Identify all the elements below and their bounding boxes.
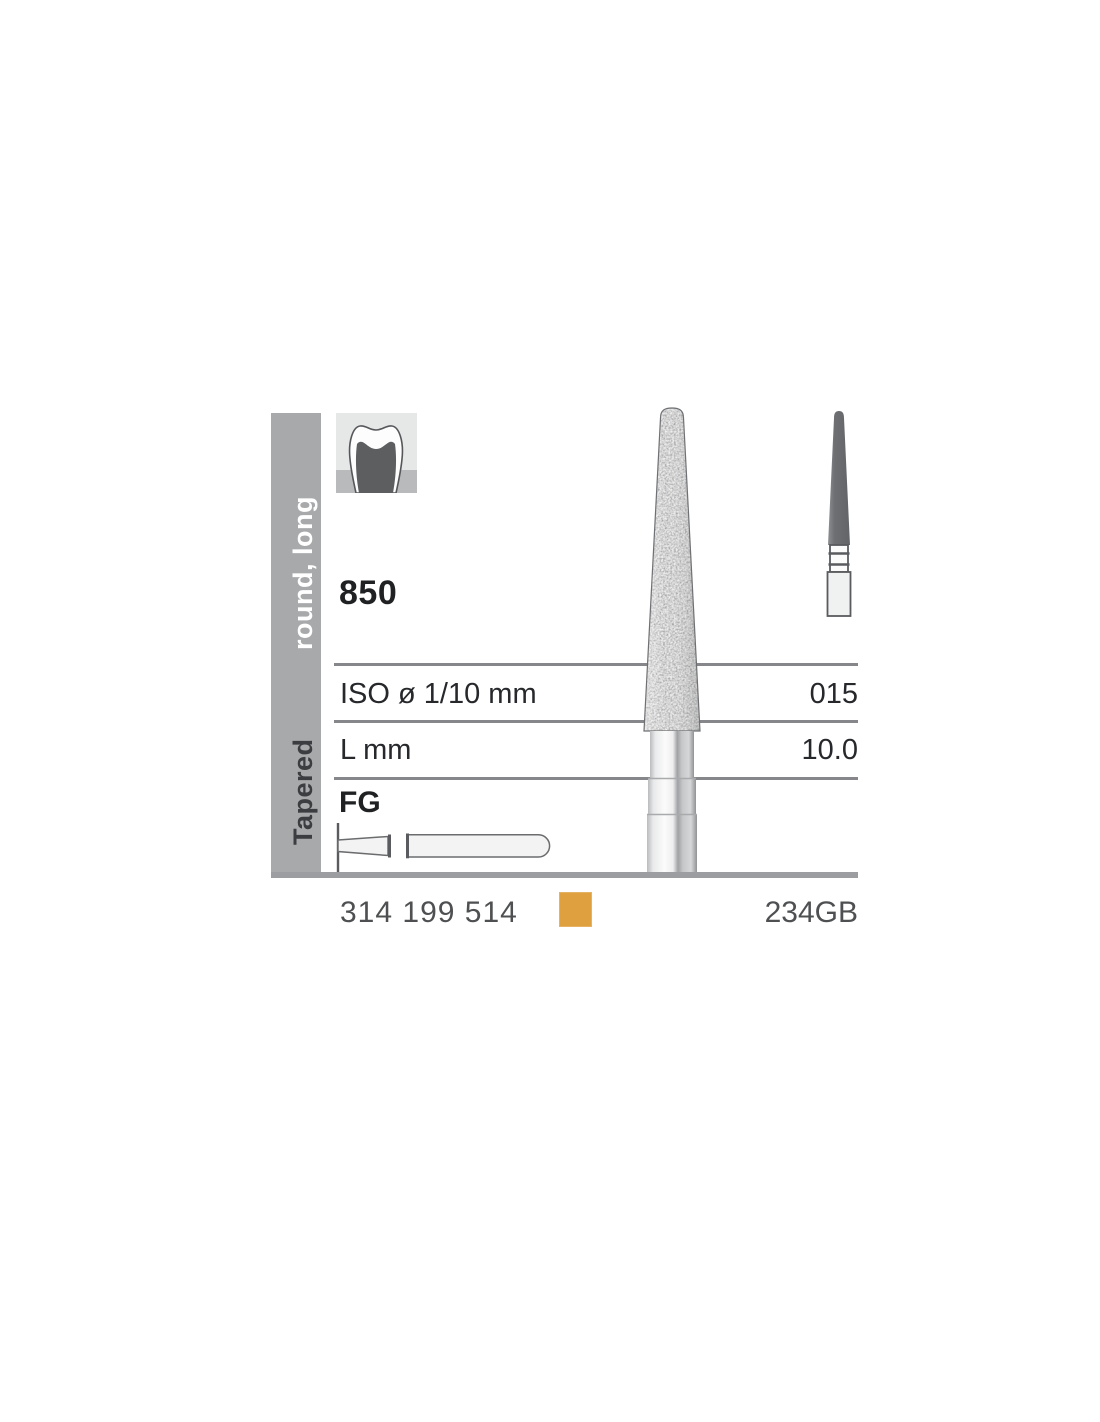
silhouette-working-part <box>828 411 850 545</box>
group-label-vertical: Tapered <box>287 738 319 845</box>
product-code: 234GB <box>700 896 858 930</box>
silhouette-shank <box>828 572 851 616</box>
figure-number: 850 <box>339 574 397 613</box>
silhouette-neck <box>830 545 848 572</box>
order-number: 314 199 514 <box>340 896 518 930</box>
bur-shank-upper <box>648 778 696 814</box>
bur-neck <box>650 731 694 778</box>
iso-diameter-label: ISO ø 1/10 mm <box>340 678 537 711</box>
table-rule-middle <box>334 720 858 723</box>
shape-label-vertical: round, long <box>287 496 319 650</box>
diamond-bur-photo <box>640 404 704 874</box>
shank-type-label: FG <box>339 786 381 820</box>
tooth-crown-icon <box>336 413 417 493</box>
bur-shank-lower <box>647 814 697 872</box>
bur-silhouette <box>824 406 854 618</box>
fg-shank-outline-icon <box>330 820 570 880</box>
catalog-entry: round, long Tapered 850 <box>0 0 1100 1422</box>
table-rule-top <box>334 663 858 666</box>
diamond-coated-cone <box>640 404 704 734</box>
table-rule-lower <box>334 777 858 780</box>
fg-shank-body <box>408 835 550 857</box>
length-value: 10.0 <box>700 734 858 767</box>
fg-tip-section <box>338 837 388 856</box>
iso-diameter-value: 015 <box>700 678 858 711</box>
grit-color-swatch <box>559 892 592 927</box>
prepared-tooth-body <box>356 442 396 493</box>
length-label: L mm <box>340 734 411 767</box>
